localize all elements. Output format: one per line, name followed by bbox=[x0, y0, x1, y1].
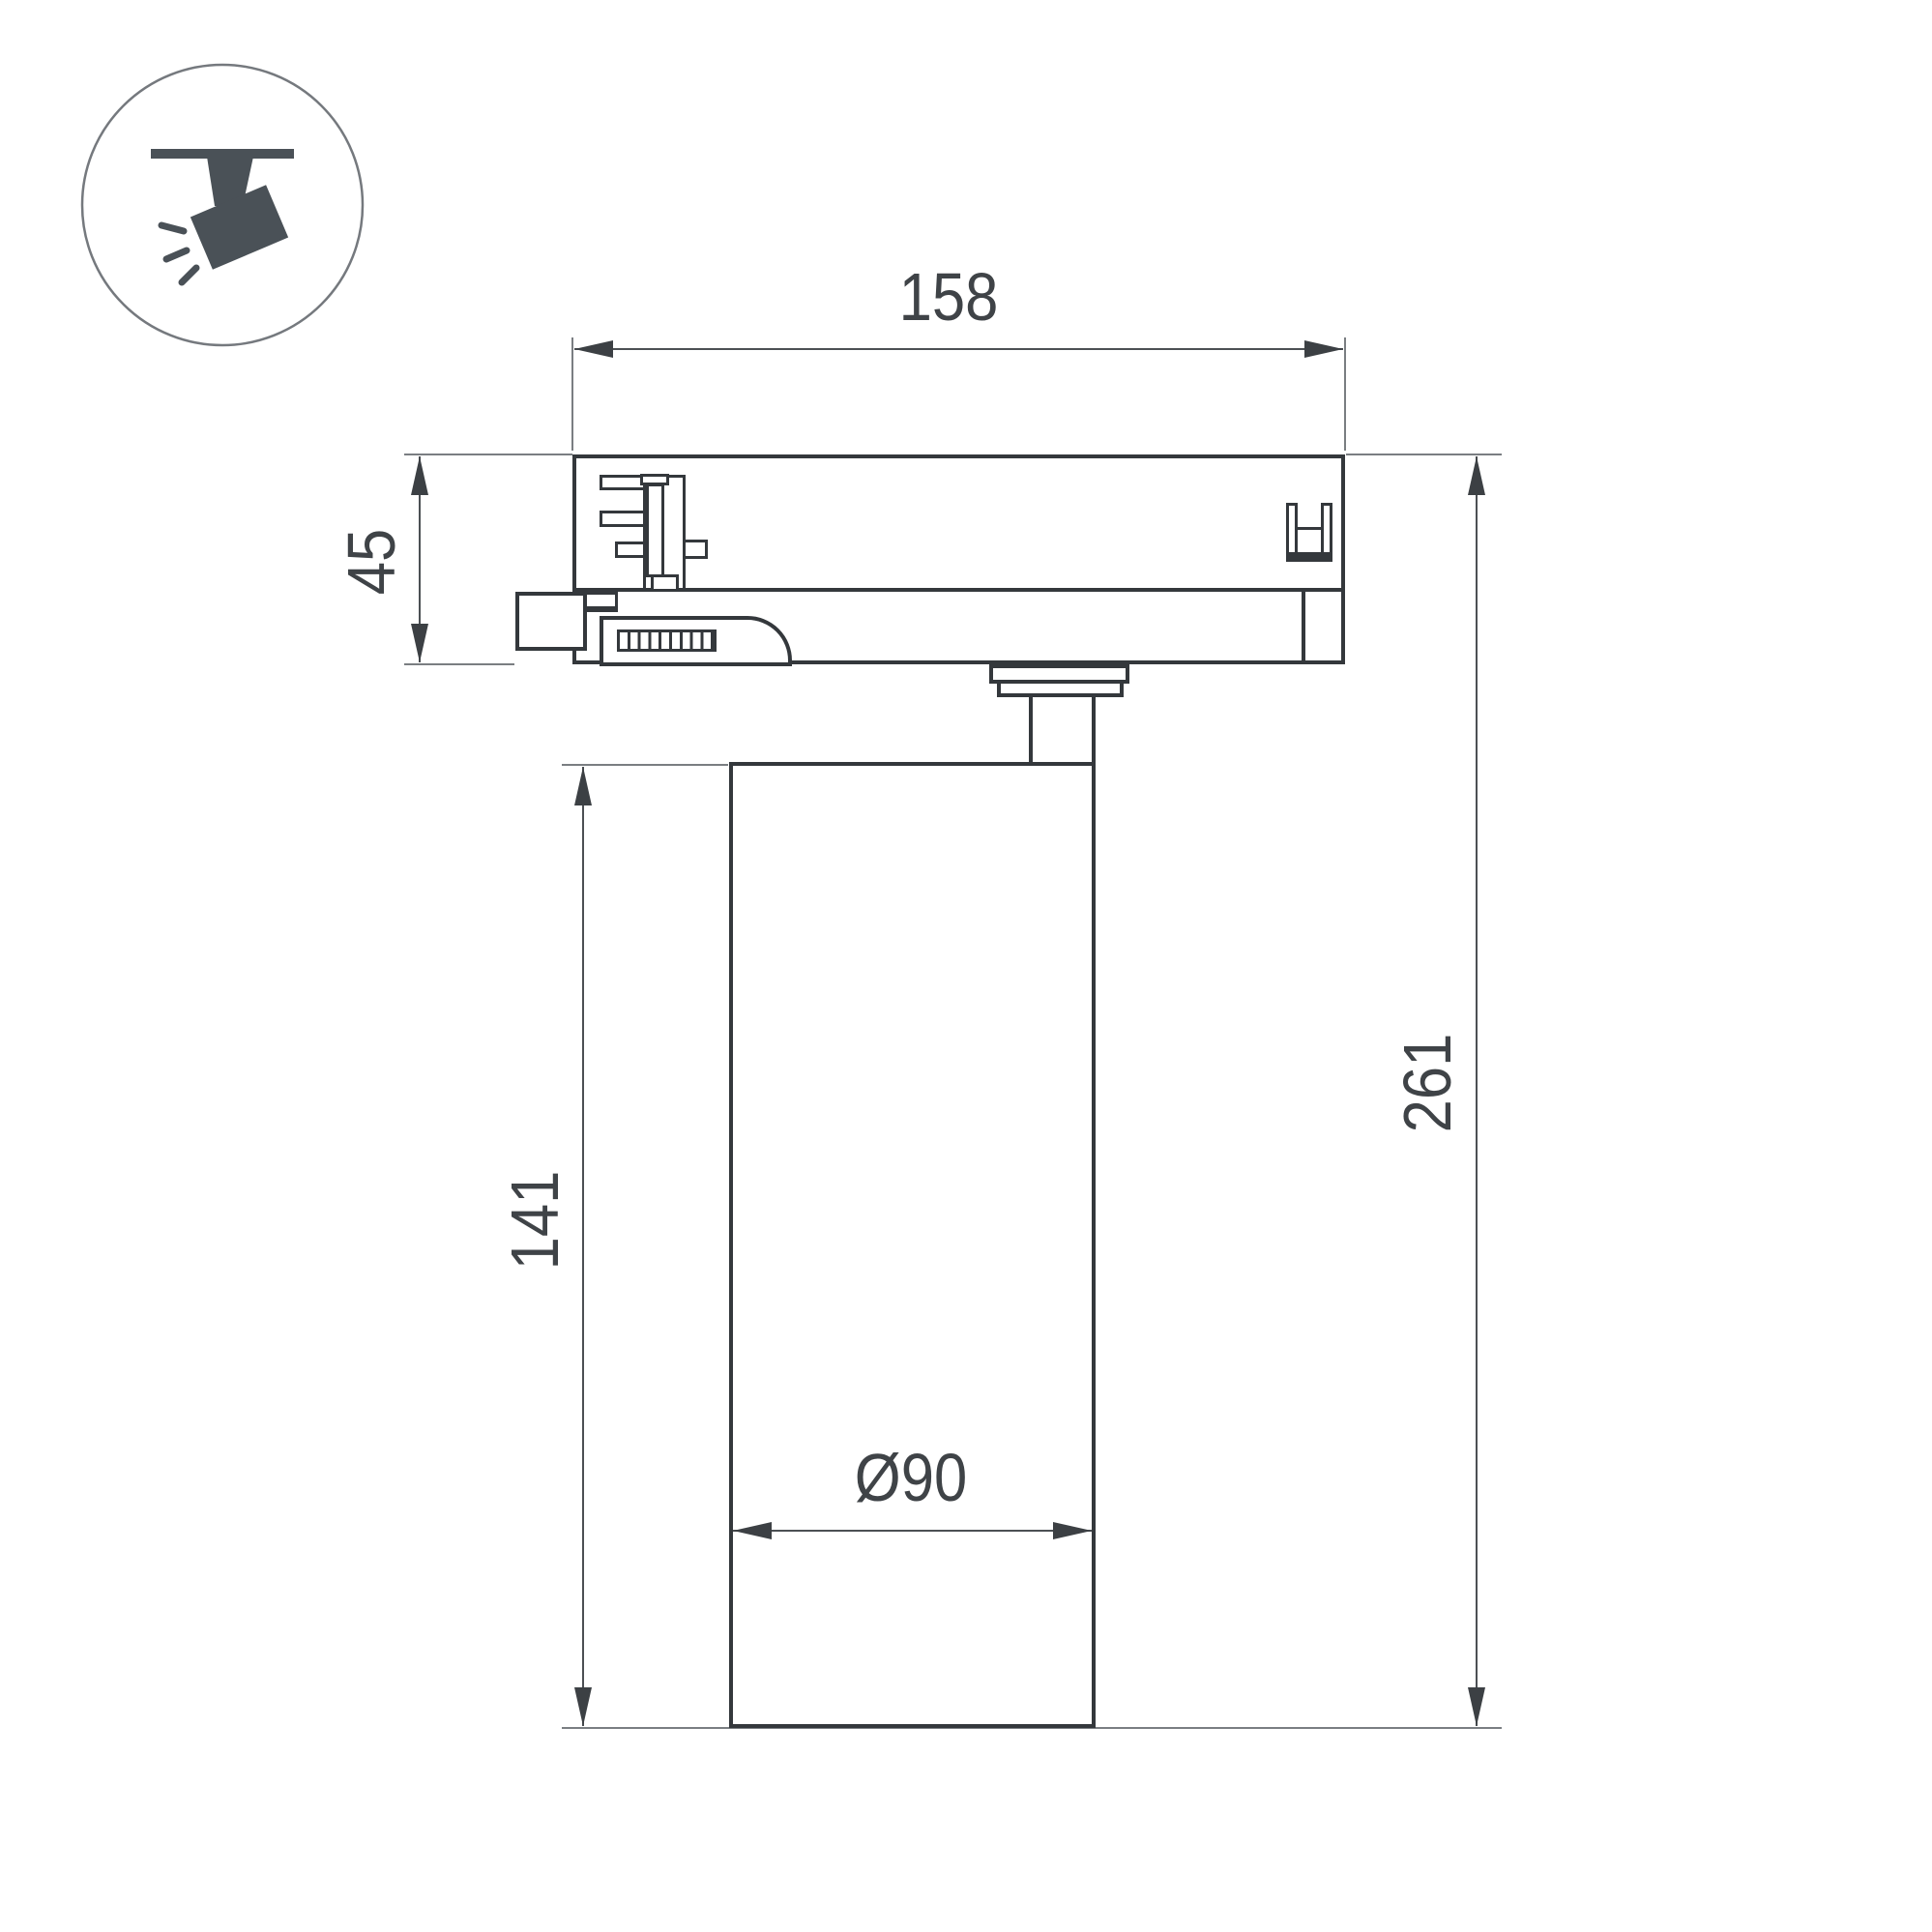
arrowhead-d90-right bbox=[1053, 1522, 1092, 1539]
dim-line-141 bbox=[582, 767, 584, 1726]
arrowhead-261-up bbox=[1468, 456, 1485, 495]
dim-label-adapter-width: 158 bbox=[899, 258, 999, 336]
ext-line-141-top bbox=[562, 764, 728, 766]
arrowhead-141-up bbox=[574, 767, 592, 805]
track-spotlight-icon bbox=[79, 62, 366, 348]
ext-line-158-right bbox=[1344, 337, 1346, 451]
clip-left-prong bbox=[1286, 503, 1298, 558]
dim-label-adapter-height: 45 bbox=[333, 529, 410, 596]
arrowhead-158-left bbox=[574, 340, 613, 358]
arrowhead-45-down bbox=[411, 624, 428, 662]
technical-drawing-track-light: 158 45 141 261 Ø90 bbox=[0, 0, 1932, 1932]
dim-line-261 bbox=[1476, 456, 1478, 1726]
arrowhead-158-right bbox=[1304, 340, 1343, 358]
adapter-right-divider bbox=[1302, 588, 1305, 664]
connector-prong-top bbox=[600, 475, 646, 490]
clip-middle-rung bbox=[1298, 527, 1321, 530]
stem bbox=[1029, 693, 1096, 766]
adapter-inner-bottom-line bbox=[572, 588, 1345, 592]
ext-line-45-top bbox=[404, 454, 572, 455]
dim-line-158 bbox=[574, 348, 1343, 350]
connector-pin bbox=[646, 483, 664, 577]
clip-bottom-bar bbox=[1286, 552, 1332, 562]
latch bbox=[515, 592, 587, 651]
dim-label-body-diameter: Ø90 bbox=[855, 1439, 967, 1516]
lamp-body-cylinder bbox=[729, 762, 1096, 1728]
ext-line-261-top bbox=[1346, 454, 1502, 455]
clip-right-prong bbox=[1321, 503, 1332, 558]
arrowhead-d90-left bbox=[733, 1522, 772, 1539]
latch-tab-line bbox=[584, 606, 618, 609]
connector-prong-mid bbox=[600, 511, 646, 527]
slider-hatch bbox=[617, 629, 717, 652]
arrowhead-45-up bbox=[411, 456, 428, 495]
dim-label-body-height: 141 bbox=[496, 1171, 573, 1271]
ext-line-45-bottom bbox=[404, 663, 514, 665]
connector-prong-low bbox=[615, 542, 646, 558]
connector-pin-foot bbox=[651, 574, 679, 592]
dim-line-d90 bbox=[733, 1530, 1092, 1532]
arrowhead-261-down bbox=[1468, 1687, 1485, 1726]
ext-line-158-left bbox=[571, 337, 573, 451]
arrowhead-141-down bbox=[574, 1687, 592, 1726]
connector-notch-right bbox=[683, 540, 708, 559]
dim-label-total-height: 261 bbox=[1389, 1034, 1466, 1133]
